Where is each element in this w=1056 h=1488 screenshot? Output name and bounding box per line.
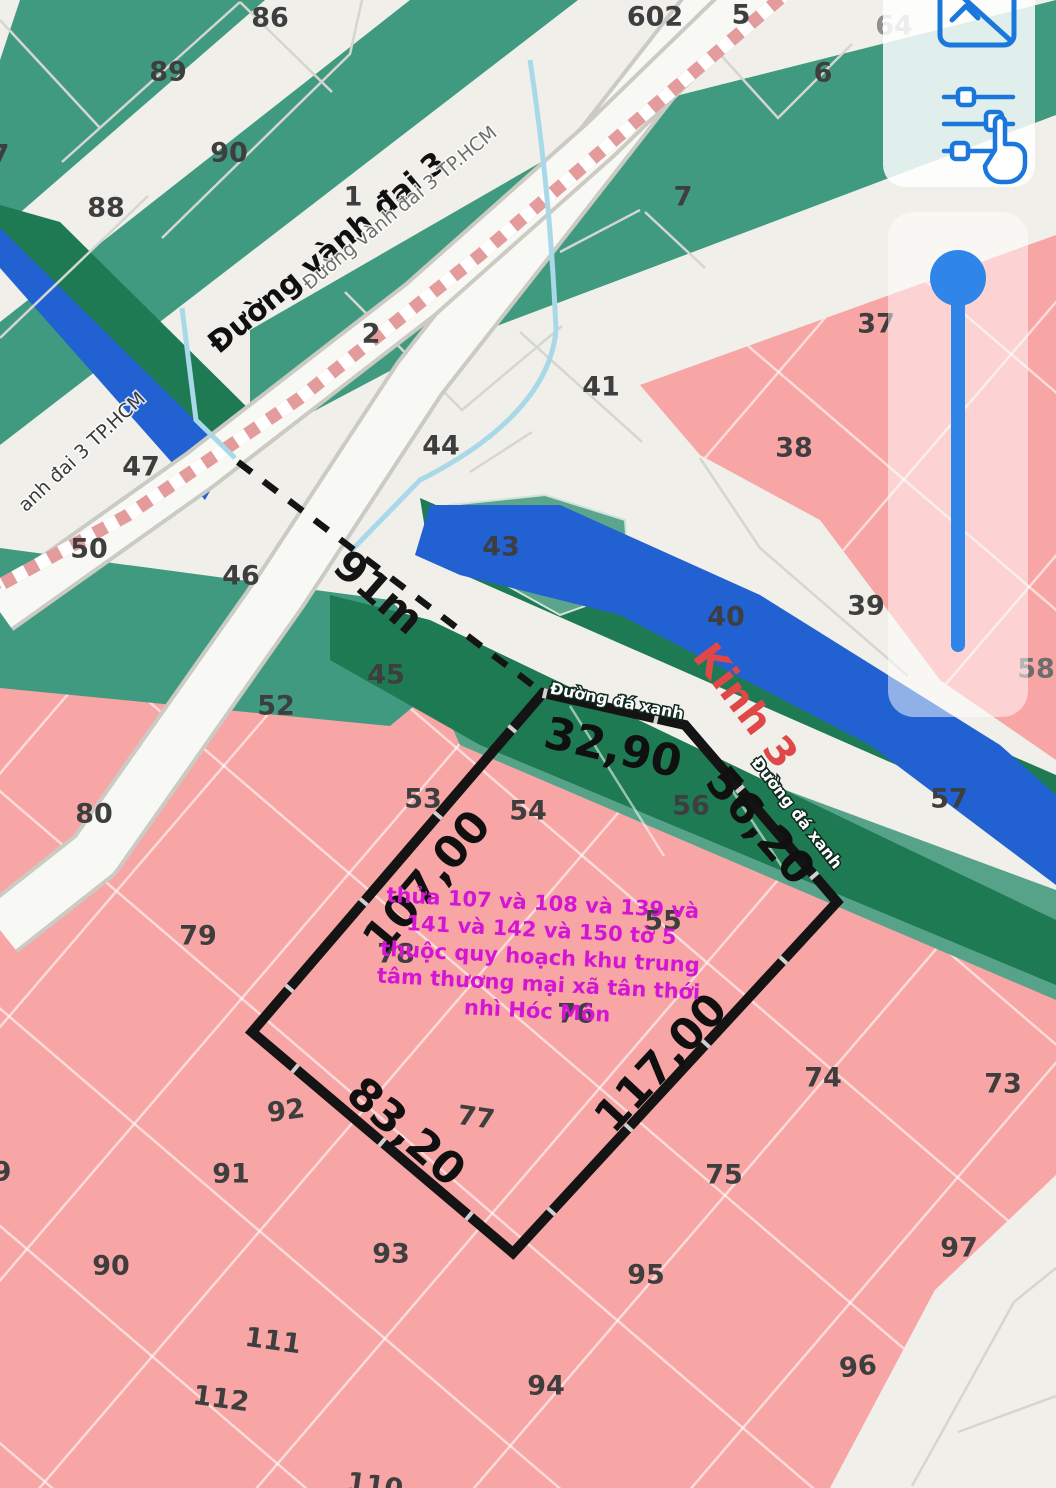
parcel-label: 75 <box>705 1160 743 1191</box>
parcel-label: 46 <box>222 561 260 592</box>
parcel-label: 92 <box>265 1093 307 1129</box>
parcel-label: 602 <box>627 2 683 33</box>
parcel-label: 88 <box>87 193 125 224</box>
parcel-label: 7 <box>674 182 693 213</box>
parcel-label: 47 <box>122 452 160 483</box>
parcel-label: 54 <box>509 796 547 827</box>
zoom-slider-knob[interactable] <box>930 250 986 306</box>
parcel-label: 43 <box>482 532 520 563</box>
parcel-label: 50 <box>70 534 108 565</box>
parcel-label: 5 <box>732 0 751 31</box>
parcel-label: 6 <box>814 58 833 89</box>
parcel-label: 77 <box>455 1100 497 1136</box>
parcel-label: 96 <box>838 1350 879 1385</box>
parcel-label: 90 <box>92 1251 130 1282</box>
parcel-label: 41 <box>582 372 620 403</box>
parcel-label: 2 <box>362 319 381 350</box>
parcel-label: 74 <box>804 1063 842 1094</box>
parcel-label: 97 <box>940 1233 978 1264</box>
parcel-label: 45 <box>367 660 405 691</box>
parcel-label: 91 <box>212 1159 250 1190</box>
tools-panel <box>883 0 1035 187</box>
parcel-label: 44 <box>422 431 460 462</box>
parcel-label: 7 <box>0 140 9 171</box>
parcel-label: 79 <box>179 921 217 952</box>
parcel-label: 94 <box>527 1371 565 1402</box>
parcel-label: 38 <box>775 433 813 464</box>
parcel-label: 53 <box>404 784 442 815</box>
parcel-label: 86 <box>251 3 289 34</box>
parcel-label: 40 <box>707 602 745 633</box>
parcel-label: 89 <box>149 57 187 88</box>
parcel-label: 80 <box>75 799 113 830</box>
parcel-label: 57 <box>930 784 968 815</box>
parcel-label: 52 <box>257 691 295 722</box>
parcel-label: 9 <box>0 1157 11 1188</box>
map-canvas[interactable]: 8689908876025646712414447504643403938375… <box>0 0 1056 1488</box>
parcel-label: 90 <box>210 138 248 169</box>
parcel-label: 39 <box>847 591 885 622</box>
zoom-slider-panel <box>888 212 1028 717</box>
parcel-label: 93 <box>372 1239 410 1270</box>
parcel-label: 73 <box>984 1069 1022 1100</box>
parcel-label: 95 <box>627 1260 665 1291</box>
map-controls <box>883 0 1035 717</box>
